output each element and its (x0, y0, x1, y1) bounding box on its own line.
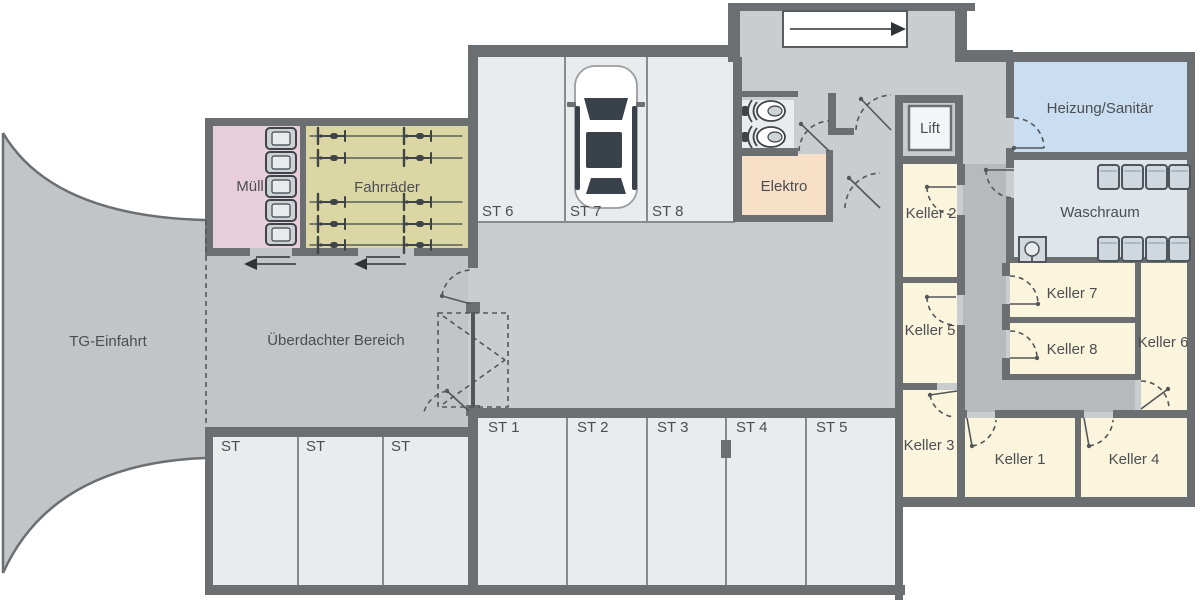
trash-bin-icon (266, 128, 296, 149)
sink-icon (1019, 237, 1046, 262)
wall (728, 3, 740, 62)
label-parking-st6: ST 6 (482, 203, 513, 220)
wall (468, 408, 898, 418)
wall (1002, 263, 1010, 276)
wall (1006, 160, 1014, 168)
label-parking-st7: ST 7 (570, 203, 601, 220)
wall (828, 128, 854, 135)
wall (742, 148, 798, 156)
label-parking-st-b: ST (306, 438, 325, 455)
label-lift: Lift (920, 120, 941, 137)
wall (1075, 418, 1081, 497)
wall (895, 95, 903, 156)
wall (957, 410, 967, 418)
wall (897, 277, 957, 283)
wall (205, 248, 250, 256)
label-parking-st3: ST 3 (657, 419, 688, 436)
wall (955, 95, 963, 164)
trash-bin-icon (266, 176, 296, 197)
label-parking-st5: ST 5 (816, 419, 847, 436)
washing-machine-icon (1146, 165, 1167, 189)
gate-line (471, 312, 475, 407)
wall (1002, 304, 1010, 330)
label-heating-room: Heizung/Sanitär (1047, 100, 1154, 117)
wall (468, 45, 478, 268)
wall (733, 215, 833, 222)
floorplan-canvas: TG-Einfahrt Überdachter Bereich Müll Fah… (0, 0, 1200, 600)
trash-bin-icon (266, 200, 296, 221)
wall (895, 95, 963, 103)
label-cellar-1: Keller 1 (995, 451, 1046, 468)
wall (957, 164, 965, 185)
wall (1002, 358, 1010, 374)
label-parking-st1: ST 1 (488, 419, 519, 436)
washing-machine-icon (1098, 237, 1119, 261)
wall (1113, 410, 1187, 418)
wall (826, 150, 833, 222)
label-parking-st8: ST 8 (652, 203, 683, 220)
wall (1002, 374, 1135, 380)
trash-bin-icon (266, 224, 296, 245)
wall (1006, 198, 1014, 257)
label-bike-room: Fahrräder (354, 179, 420, 196)
wall (205, 427, 213, 595)
wall (895, 497, 1195, 507)
label-cellar-7: Keller 7 (1047, 285, 1098, 302)
floorplan-basement-garage: TG-Einfahrt Überdachter Bereich Müll Fah… (0, 0, 1200, 600)
wall (468, 415, 478, 585)
wall (895, 156, 963, 164)
label-covered-area: Überdachter Bereich (267, 331, 405, 349)
label-parking-st-a: ST (221, 438, 240, 455)
wall (205, 118, 474, 126)
entrance-ramp-area (3, 133, 205, 573)
wall (300, 126, 306, 248)
wall (205, 118, 213, 256)
washing-machine-icon (1122, 165, 1143, 189)
wall (468, 45, 740, 57)
wall (742, 91, 798, 97)
washing-machine-icon (1169, 165, 1190, 189)
wall (1006, 62, 1014, 118)
wall (205, 585, 905, 595)
wall (955, 50, 1013, 62)
cellar-corridor-horizontal (963, 380, 1135, 412)
label-parking-st4: ST 4 (736, 419, 767, 436)
label-trash-room: Müll (236, 178, 264, 195)
wall (1006, 152, 1187, 160)
wall (414, 248, 474, 256)
label-cellar-2: Keller 2 (906, 205, 957, 222)
wall (205, 427, 478, 437)
washing-machine-icon (1146, 237, 1167, 261)
label-cellar-4: Keller 4 (1109, 451, 1160, 468)
parking-bottom-block (478, 418, 895, 585)
label-parking-st2: ST 2 (577, 419, 608, 436)
label-entrance: TG-Einfahrt (69, 333, 147, 350)
washing-machine-icon (1098, 165, 1119, 189)
wall (995, 410, 1084, 418)
wall (897, 383, 937, 390)
wall (292, 248, 358, 256)
cellar-corridor-vertical (963, 164, 1006, 412)
parking-left-block (213, 437, 468, 585)
wall (955, 3, 967, 58)
label-cellar-8: Keller 8 (1047, 341, 1098, 358)
label-laundry-room: Waschraum (1060, 204, 1139, 221)
label-cellar-6: Keller 6 (1138, 334, 1189, 351)
trash-bin-icon (266, 152, 296, 173)
structural-column (721, 440, 731, 458)
wall (733, 57, 742, 222)
washing-machine-icon (1169, 237, 1190, 261)
wall (957, 215, 965, 295)
label-electrical-room: Elektro (761, 178, 808, 195)
washing-machine-icon (1122, 237, 1143, 261)
label-parking-st-c: ST (391, 438, 410, 455)
wall (728, 3, 975, 11)
wall (895, 156, 903, 600)
wall (1006, 52, 1195, 62)
wall (1135, 263, 1141, 380)
wall (1010, 317, 1135, 323)
car-icon (567, 66, 645, 208)
trash-bins (266, 128, 296, 245)
label-cellar-5: Keller 5 (905, 322, 956, 339)
wall (1187, 52, 1195, 507)
label-cellar-3: Keller 3 (904, 437, 955, 454)
